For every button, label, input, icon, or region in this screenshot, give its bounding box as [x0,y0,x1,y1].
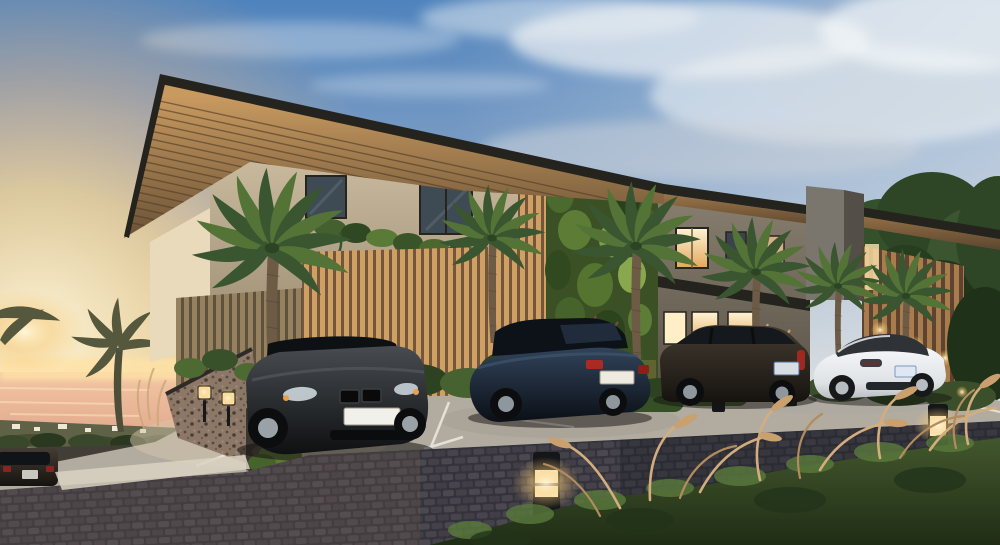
car-dark-blue-sedan [468,318,652,428]
architectural-rendering-image [0,0,1000,545]
car-dark-wagon [0,448,58,486]
window-lit-lower-1 [664,312,686,344]
